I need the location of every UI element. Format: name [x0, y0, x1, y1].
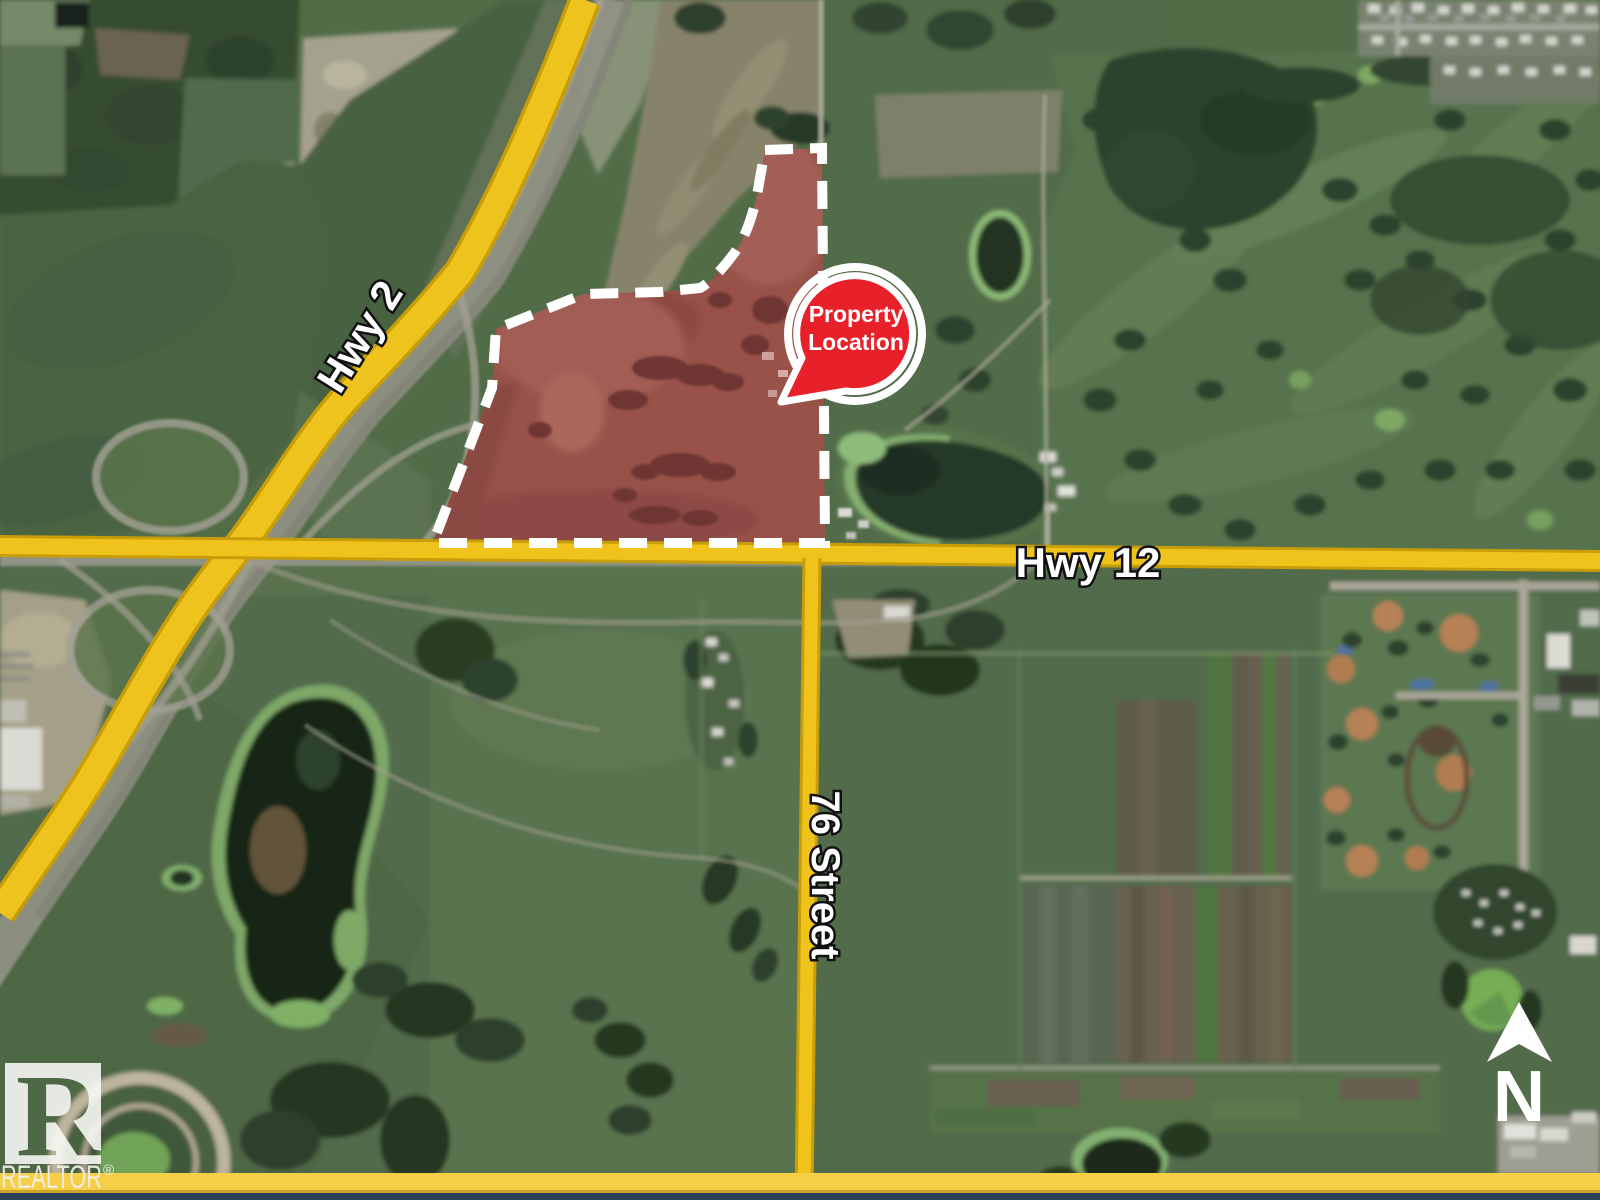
- svg-text:REALTOR: REALTOR: [1, 1159, 102, 1195]
- svg-text:Location: Location: [808, 329, 904, 355]
- svg-text:Property: Property: [809, 301, 904, 327]
- svg-text:76 Street: 76 Street: [803, 791, 847, 960]
- svg-text:®: ®: [103, 1162, 114, 1179]
- svg-text:Hwy 12: Hwy 12: [1016, 539, 1161, 586]
- svg-text:N: N: [1493, 1057, 1545, 1137]
